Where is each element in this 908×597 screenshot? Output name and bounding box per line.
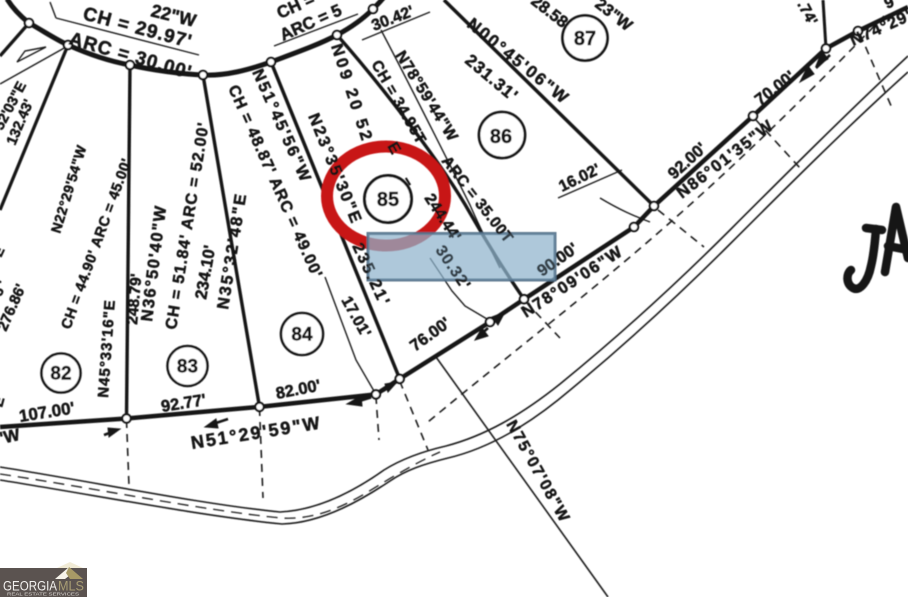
svg-text:87: 87 — [574, 28, 596, 50]
svg-text:REAL ESTATE SERVICES: REAL ESTATE SERVICES — [7, 592, 79, 597]
svg-text:83: 83 — [177, 357, 198, 378]
svg-text:85: 85 — [377, 189, 399, 211]
svg-text:84: 84 — [291, 325, 313, 346]
svg-text:86: 86 — [490, 126, 512, 148]
svg-text:82: 82 — [50, 364, 71, 385]
